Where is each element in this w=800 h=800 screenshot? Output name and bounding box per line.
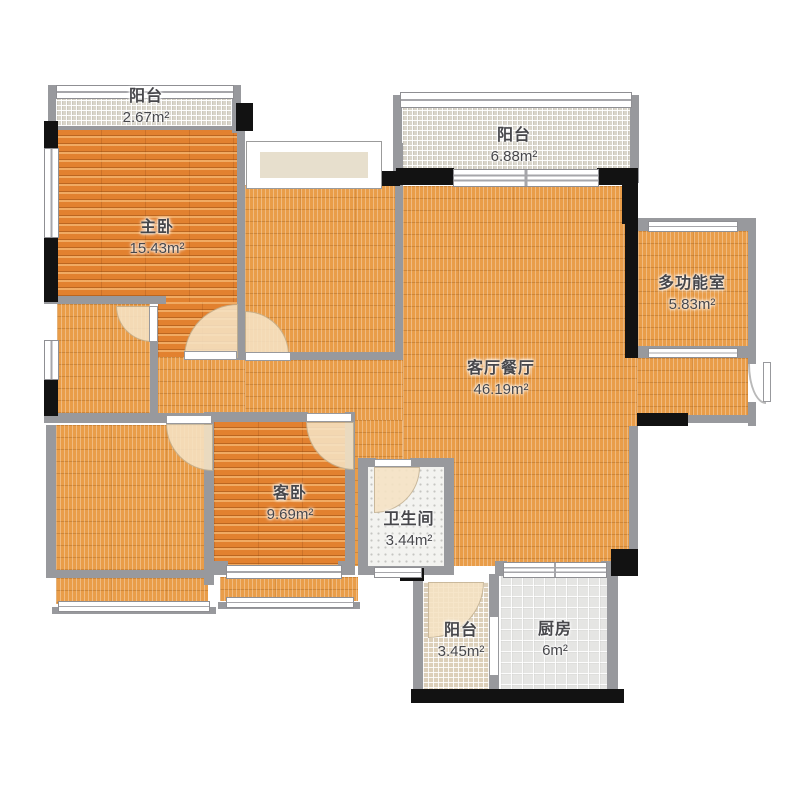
wall: [611, 549, 638, 576]
bay-window: [246, 141, 382, 189]
room-name: 多功能室: [658, 274, 726, 295]
room-label-guest-bedroom: 客卧 9.69m²: [267, 484, 314, 524]
wall: [46, 425, 56, 578]
room-area: 15.43m²: [129, 239, 184, 259]
room-area: 46.19m²: [467, 380, 535, 400]
wall: [629, 426, 638, 550]
window: [226, 597, 354, 608]
door-leaf-master-bedroom: [184, 351, 237, 360]
room-name: 阳台: [438, 621, 485, 642]
wall: [237, 126, 245, 360]
window: [374, 567, 422, 578]
room-name: 卫生间: [383, 510, 434, 531]
window: [648, 221, 738, 232]
room-name: 厨房: [538, 620, 572, 641]
room-label-living-dining: 客厅餐厅 46.19m²: [467, 359, 535, 399]
sliding-door: [453, 169, 599, 187]
window: [58, 601, 210, 612]
room-label-balcony-top-left: 阳台 2.67m²: [123, 87, 170, 127]
door-leaf-left-bottom-room: [166, 415, 212, 424]
wall: [444, 458, 454, 572]
wall: [413, 572, 423, 696]
bay-window-sill: [258, 150, 370, 180]
wall: [685, 415, 751, 423]
hallway: [155, 357, 245, 420]
room-name: 阳台: [491, 126, 538, 147]
door-leaf-guest-bedroom: [306, 413, 352, 422]
door-leaf-bay-room: [245, 352, 291, 361]
window: [648, 348, 738, 358]
wall: [290, 352, 403, 360]
room-label-bathroom: 卫生间 3.44m²: [383, 510, 434, 550]
room-living-dining-entry-arm: [637, 358, 748, 420]
wall: [748, 218, 756, 364]
room-label-balcony-top: 阳台 6.88m²: [491, 126, 538, 166]
room-label-multi-function-room: 多功能室 5.83m²: [658, 274, 726, 314]
room-name: 客厅餐厅: [467, 359, 535, 380]
wall: [625, 184, 638, 358]
door-leaf-bathroom: [374, 459, 412, 467]
room-area: 2.67m²: [123, 108, 170, 128]
entry-door-leaf: [763, 362, 771, 402]
door-leaf-left-middle-room: [149, 306, 158, 342]
wall: [44, 296, 166, 304]
room-master-bedroom: [57, 128, 237, 304]
wall: [607, 574, 618, 696]
wall: [236, 103, 253, 131]
window: [400, 92, 632, 108]
room-area: 6m²: [538, 641, 572, 661]
wall: [637, 413, 688, 426]
room-area: 3.44m²: [383, 531, 434, 551]
wall: [358, 458, 368, 572]
room-area: 5.83m²: [658, 295, 726, 315]
wall: [44, 121, 58, 150]
sliding-door: [503, 562, 607, 578]
room-name: 客卧: [267, 484, 314, 505]
room-area: 9.69m²: [267, 505, 314, 525]
wall: [44, 378, 58, 416]
window: [44, 148, 59, 238]
floor-plan: 阳台 2.67m² 主卧 15.43m² 阳台 6.88m² 多功能室 5.83…: [0, 0, 800, 800]
wall: [44, 236, 58, 302]
door-leaf-balcony-bottom: [489, 616, 499, 676]
wall: [204, 412, 308, 422]
room-name: 阳台: [123, 87, 170, 108]
window: [226, 565, 342, 579]
room-label-balcony-bottom: 阳台 3.45m²: [438, 621, 485, 661]
wall: [411, 689, 624, 703]
window: [44, 340, 59, 380]
wall: [46, 570, 214, 578]
room-name: 主卧: [129, 218, 184, 239]
room-area: 3.45m²: [438, 642, 485, 662]
room-label-kitchen: 厨房 6m²: [538, 620, 572, 660]
wall: [396, 168, 454, 185]
room-area: 6.88m²: [491, 147, 538, 167]
room-label-master-bedroom: 主卧 15.43m²: [129, 218, 184, 258]
